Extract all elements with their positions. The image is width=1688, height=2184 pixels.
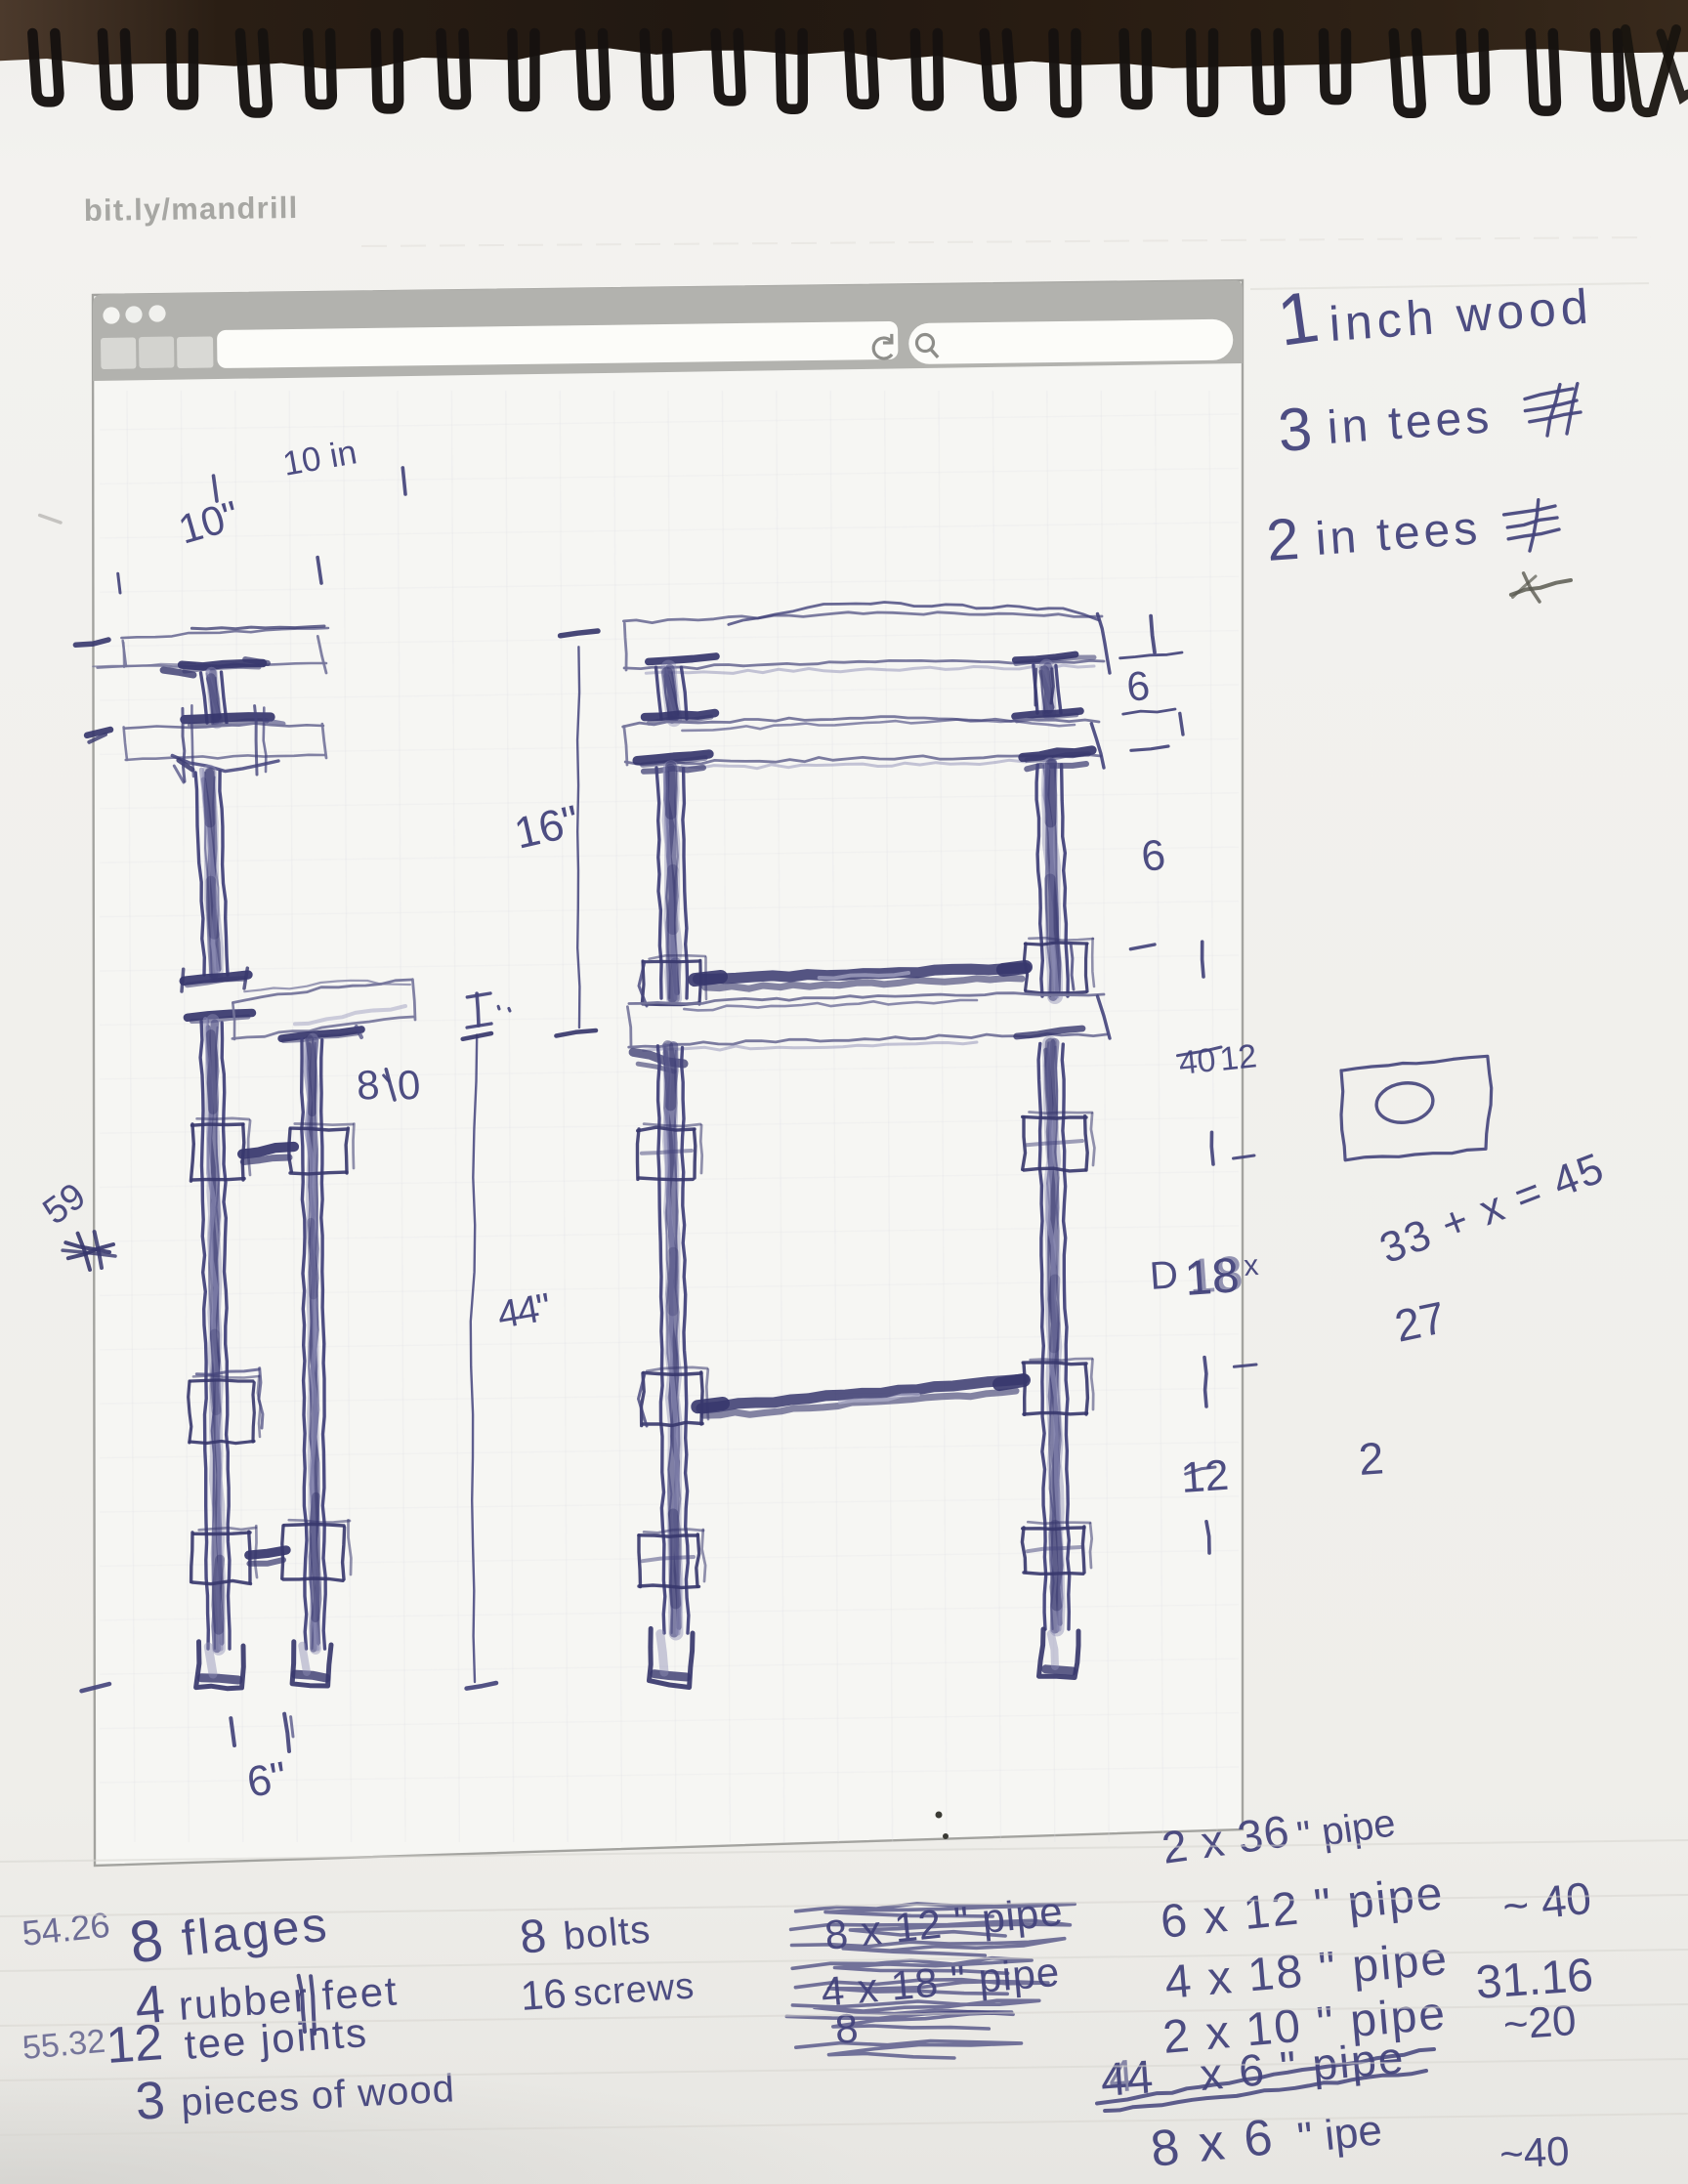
- svg-text:12: 12: [1218, 1037, 1259, 1078]
- svg-text:8: 8: [355, 1061, 381, 1109]
- svg-text:6: 6: [1139, 831, 1167, 881]
- svg-text:x: x: [1243, 1249, 1259, 1282]
- svg-text:3: 3: [1276, 396, 1314, 465]
- svg-text:55.32: 55.32: [21, 2023, 106, 2067]
- svg-text:40: 40: [1177, 1041, 1218, 1082]
- svg-text:12: 12: [1179, 1451, 1230, 1502]
- svg-text:27: 27: [1390, 1291, 1450, 1352]
- svg-text:6": 6": [243, 1753, 290, 1807]
- svg-text:screws: screws: [572, 1965, 696, 2015]
- svg-text:16: 16: [519, 1970, 568, 2019]
- svg-text:bit.ly/mandrill: bit.ly/mandrill: [84, 190, 299, 228]
- svg-text:D: D: [1149, 1253, 1180, 1298]
- svg-text:18: 18: [1187, 1245, 1245, 1304]
- svg-text:44": 44": [494, 1285, 553, 1337]
- svg-text:8: 8: [518, 1910, 549, 1964]
- svg-text:bolts: bolts: [562, 1908, 653, 1958]
- svg-text:4: 4: [1107, 2049, 1135, 2102]
- svg-text:0: 0: [396, 1061, 422, 1109]
- svg-text:~20: ~20: [1501, 1996, 1578, 2049]
- svg-text:2: 2: [1357, 1432, 1385, 1485]
- svg-text:" ipe: " ipe: [1295, 2106, 1384, 2163]
- svg-text:3: 3: [134, 2071, 167, 2131]
- svg-text:6: 6: [1124, 662, 1152, 710]
- svg-text:2: 2: [1264, 506, 1301, 573]
- svg-text:~ 40: ~ 40: [1500, 1872, 1594, 1932]
- svg-text:~40: ~40: [1498, 2127, 1571, 2177]
